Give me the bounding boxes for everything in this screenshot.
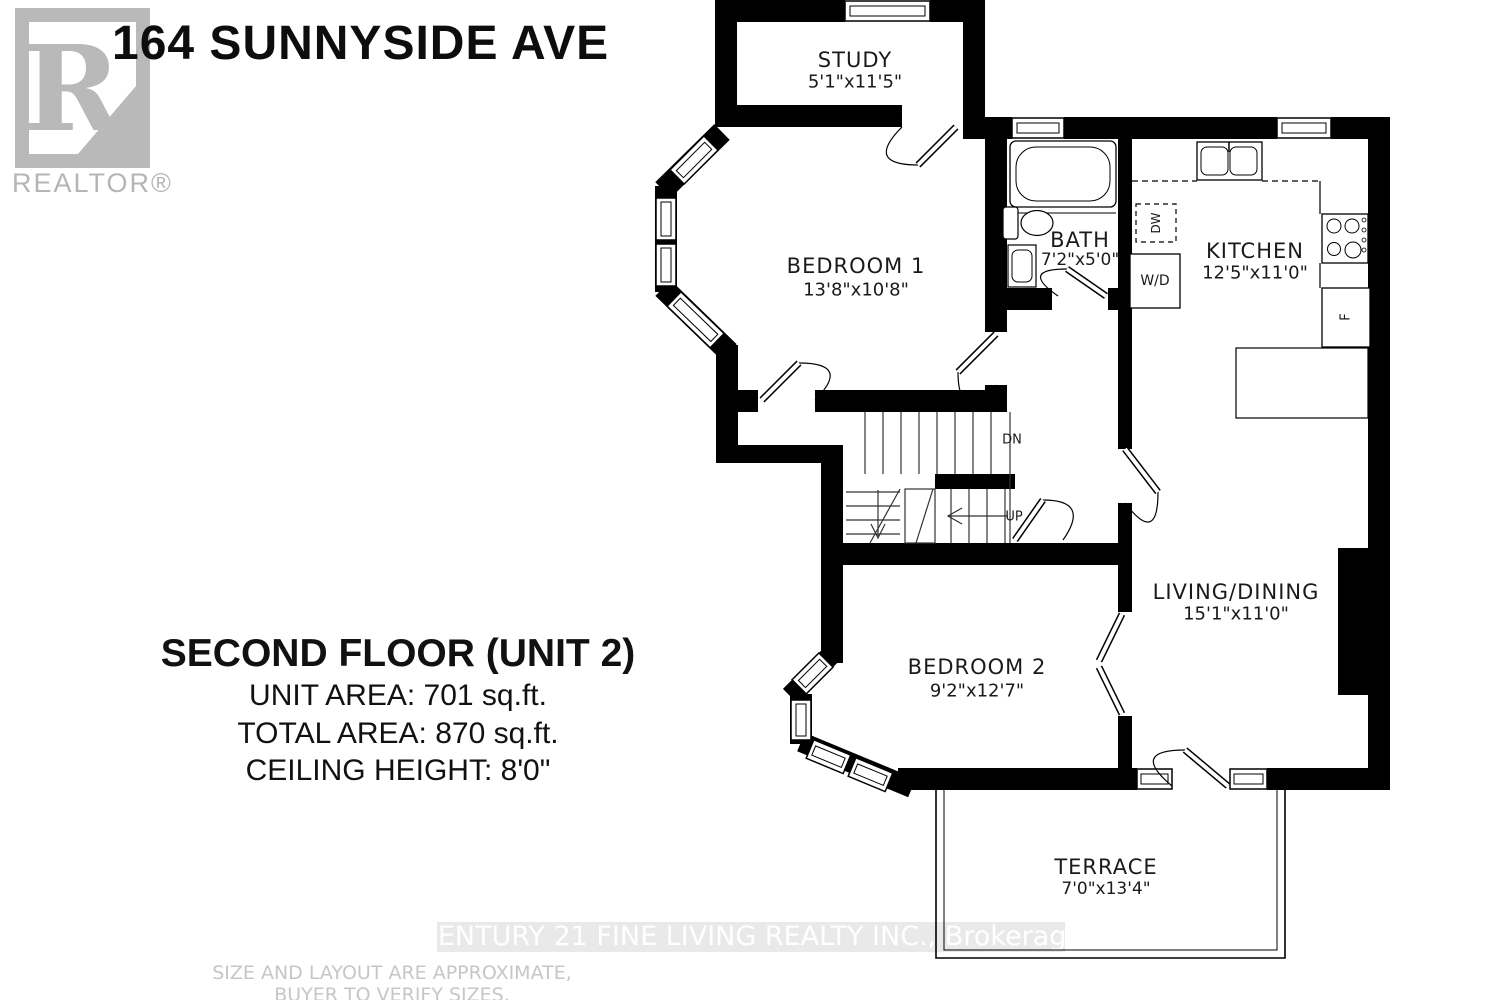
ceiling-height: CEILING HEIGHT: 8'0" — [161, 752, 636, 790]
total-area: TOTAL AREA: 870 sq.ft. — [161, 715, 636, 753]
floor-name: SECOND FLOOR (UNIT 2) — [161, 632, 636, 677]
room-dims-bedroom2: 9'2"x12'7" — [930, 681, 1024, 702]
room-label-study: STUDY — [818, 48, 892, 72]
page-title: 164 SUNNYSIDE AVE — [112, 16, 609, 71]
bedroom1-hall-door — [762, 363, 830, 400]
unit-area: UNIT AREA: 701 sq.ft. — [161, 677, 636, 715]
bedroom1-bay-window-upper — [670, 136, 718, 184]
watermark-band: CENTURY 21 FINE LIVING REALTY INC., Brok… — [419, 921, 1083, 952]
disclaimer-line2: BUYER TO VERIFY SIZES. — [274, 984, 510, 1000]
room-label-terrace: TERRACE — [1054, 855, 1157, 879]
washer-dryer-label: W/D — [1140, 273, 1169, 289]
realtor-logo-letter: R — [23, 19, 122, 158]
room-dims-kitchen: 12'5"x11'0" — [1202, 263, 1308, 284]
stairs-door — [1015, 500, 1073, 540]
dishwasher-label: DW — [1149, 212, 1163, 233]
kitchen-sink — [1197, 142, 1262, 180]
floor-info-block: SECOND FLOOR (UNIT 2) UNIT AREA: 701 sq.… — [161, 632, 636, 790]
room-dims-terrace: 7'0"x13'4" — [1061, 879, 1150, 899]
stove — [1322, 214, 1368, 263]
stairs-down-label: DN — [1002, 433, 1022, 448]
floor-plan-svg: CENTURY 21 FINE LIVING REALTY INC., Brok… — [0, 0, 1500, 1000]
fridge-label: F — [1339, 313, 1354, 320]
room-dims-bath: 7'2"x5'0" — [1041, 250, 1119, 270]
study-door — [886, 127, 956, 165]
room-label-bath: BATH — [1050, 228, 1110, 252]
bath-window — [1012, 118, 1064, 138]
room-label-living: LIVING/DINING — [1153, 580, 1320, 604]
bedroom1-bay-window-mid2 — [656, 244, 676, 286]
bathtub — [1010, 141, 1116, 207]
french-doors — [1099, 614, 1122, 714]
floorplan-page: CENTURY 21 FINE LIVING REALTY INC., Brok… — [0, 0, 1500, 1000]
bedroom2-bay-window-mid — [791, 700, 811, 740]
kitchen-window — [1277, 118, 1331, 138]
room-label-kitchen: KITCHEN — [1206, 239, 1304, 263]
bedroom1-bay-window-lower — [667, 292, 724, 348]
toilet — [1003, 207, 1053, 239]
living-window-right — [1230, 769, 1267, 789]
room-label-bedroom2: BEDROOM 2 — [908, 655, 1047, 679]
room-dims-living: 15'1"x11'0" — [1183, 604, 1289, 625]
stairs-up-label: UP — [1005, 510, 1022, 525]
study-window — [845, 1, 930, 21]
room-dims-study: 5'1"x11'5" — [808, 72, 902, 93]
room-label-bedroom1: BEDROOM 1 — [787, 254, 926, 278]
disclaimer-line1: SIZE AND LAYOUT ARE APPROXIMATE, — [212, 962, 572, 984]
room-dims-bedroom1: 13'8"x10'8" — [803, 280, 909, 301]
living-window-left — [1137, 769, 1172, 789]
bath-vanity — [1008, 245, 1036, 287]
bedroom1-bay-window-mid1 — [656, 198, 676, 240]
realtor-label: REALTOR® — [12, 168, 173, 199]
kitchen-peninsula — [1236, 348, 1368, 418]
watermark-text: CENTURY 21 FINE LIVING REALTY INC., Brok… — [419, 921, 1083, 952]
